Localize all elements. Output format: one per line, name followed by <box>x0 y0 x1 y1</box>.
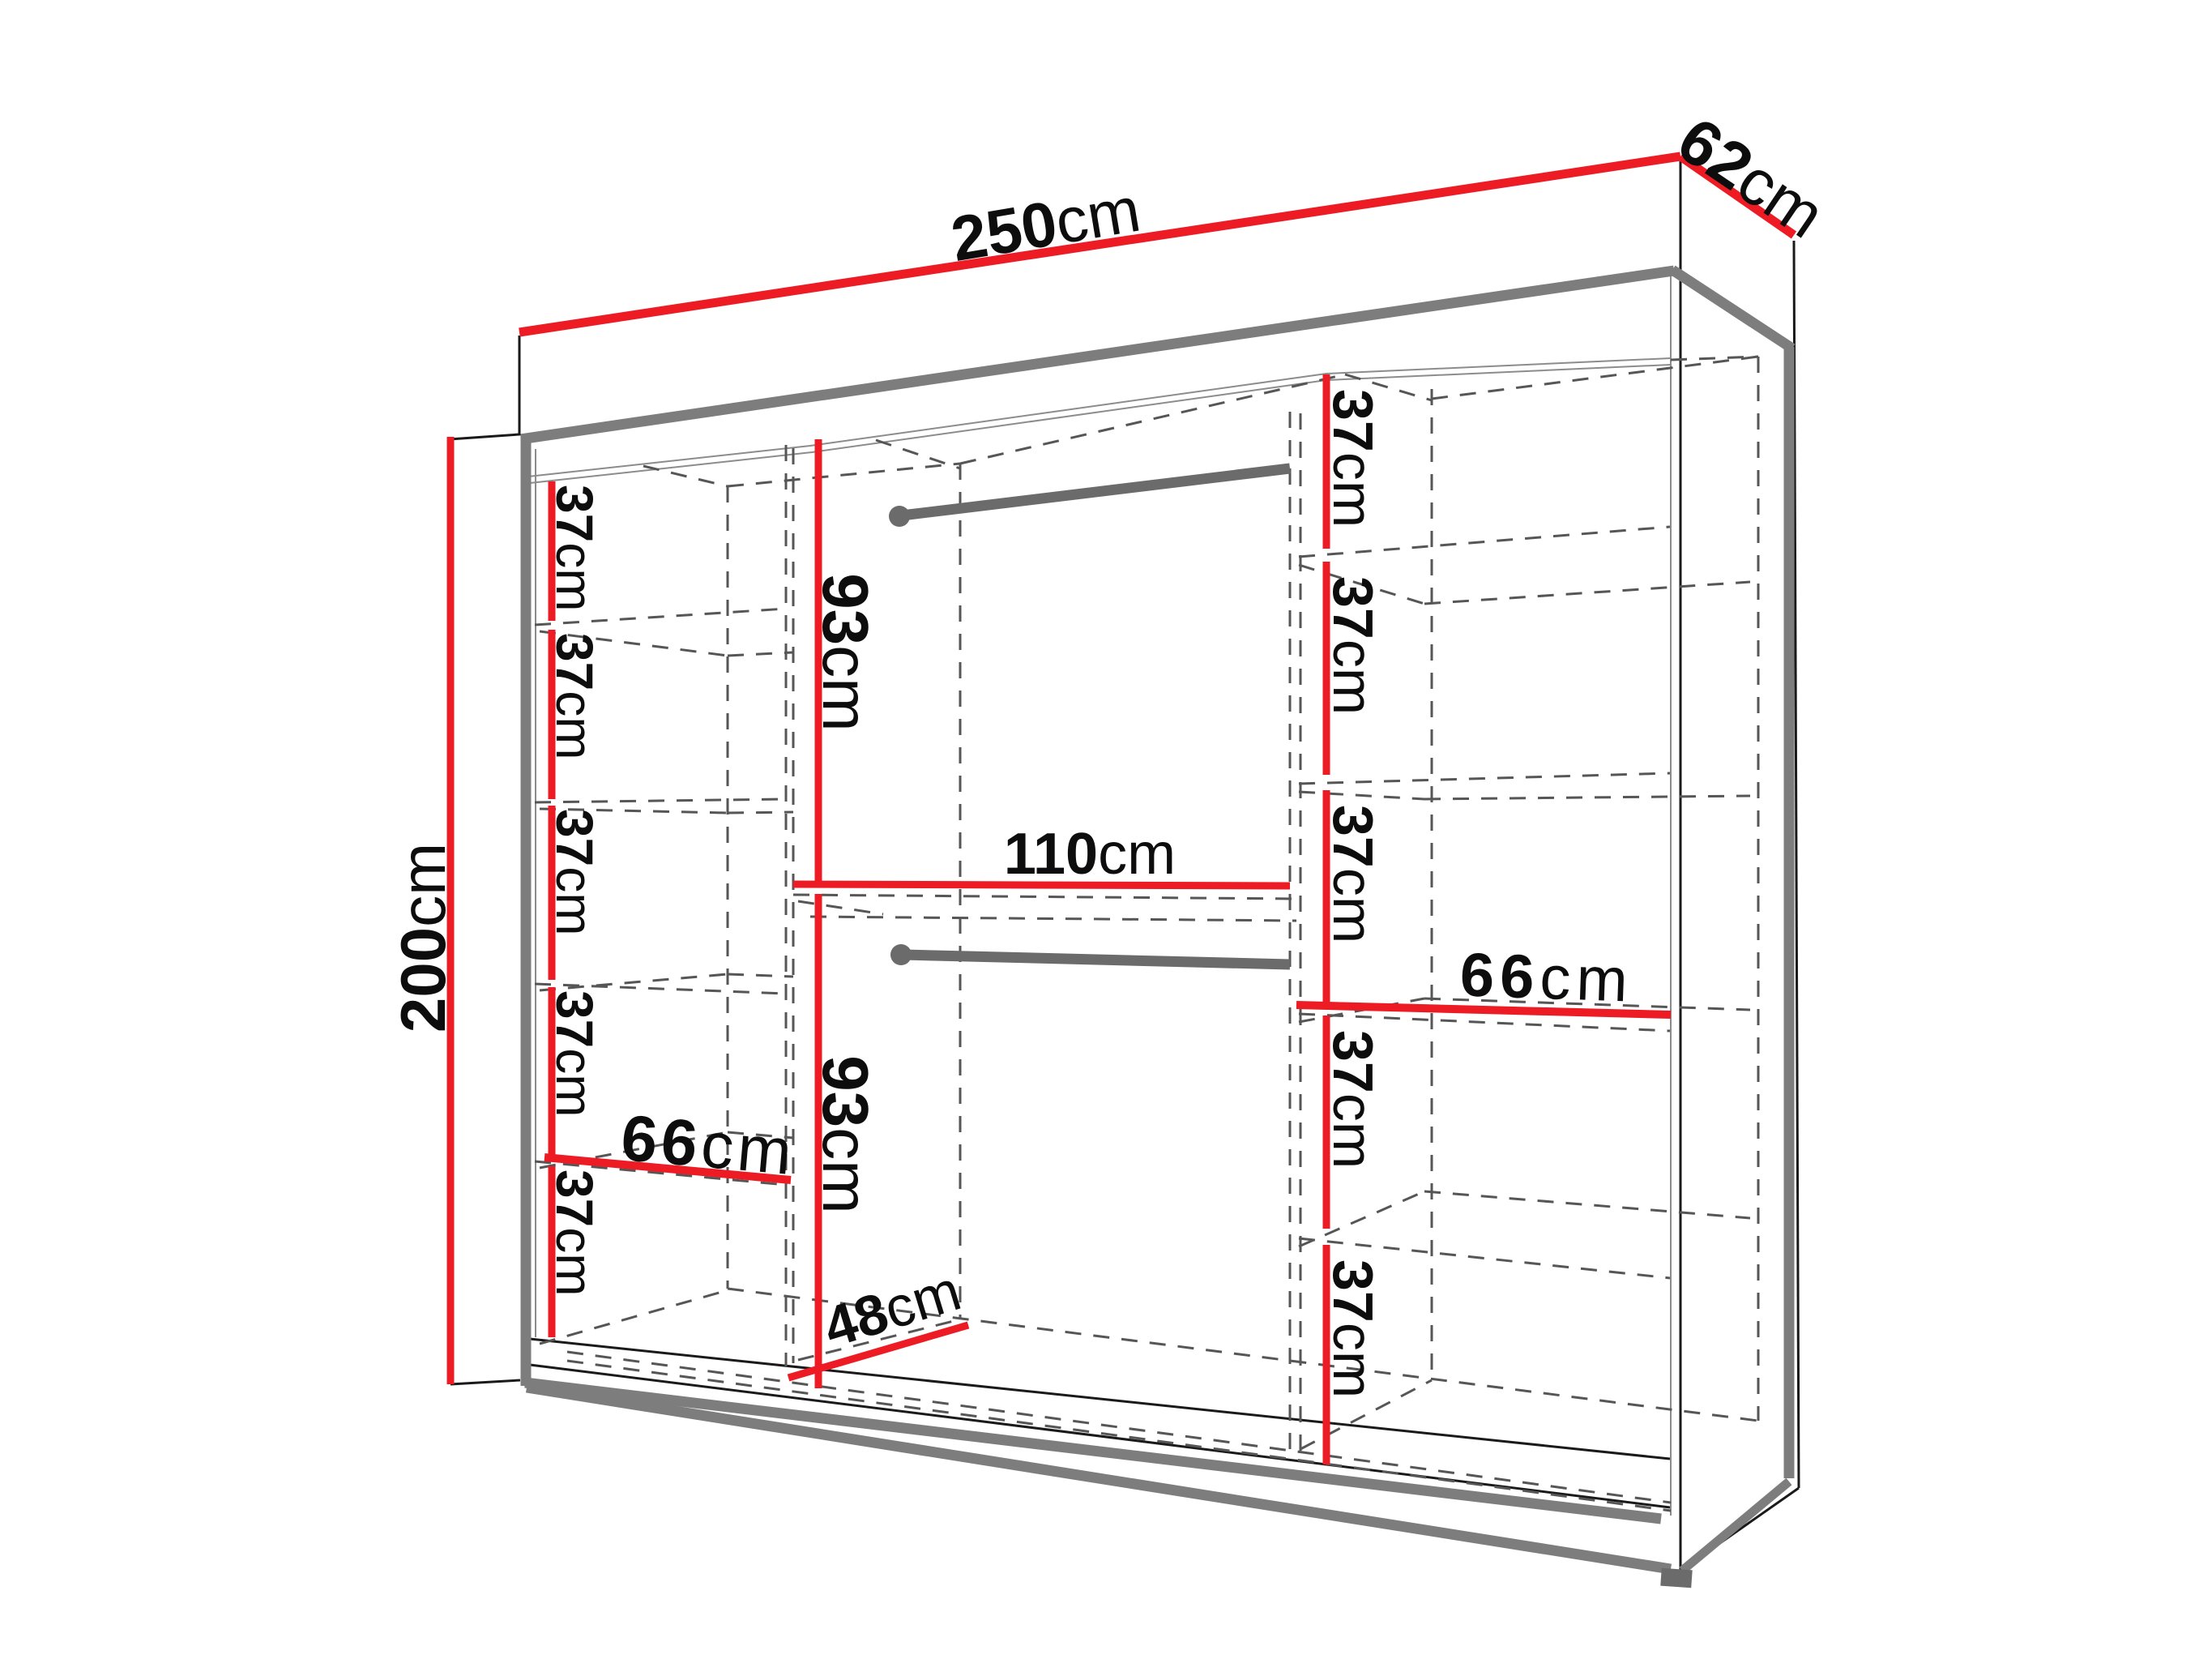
svg-text:37cm: 37cm <box>545 633 604 760</box>
svg-text:37cm: 37cm <box>1322 576 1385 715</box>
svg-text:66cm: 66cm <box>618 1101 799 1188</box>
svg-text:37cm: 37cm <box>1322 1030 1385 1169</box>
svg-text:37cm: 37cm <box>545 990 604 1118</box>
svg-text:93cm: 93cm <box>809 573 882 732</box>
svg-text:37cm: 37cm <box>1322 1259 1385 1398</box>
svg-text:37cm: 37cm <box>1322 389 1385 528</box>
svg-text:37cm: 37cm <box>545 809 604 936</box>
svg-text:66cm: 66cm <box>1459 940 1635 1015</box>
svg-text:200cm: 200cm <box>387 843 459 1033</box>
svg-text:37cm: 37cm <box>1322 805 1385 943</box>
svg-text:93cm: 93cm <box>809 1055 882 1214</box>
svg-text:37cm: 37cm <box>545 485 604 612</box>
svg-text:110cm: 110cm <box>1004 822 1176 887</box>
svg-text:37cm: 37cm <box>545 1169 604 1297</box>
